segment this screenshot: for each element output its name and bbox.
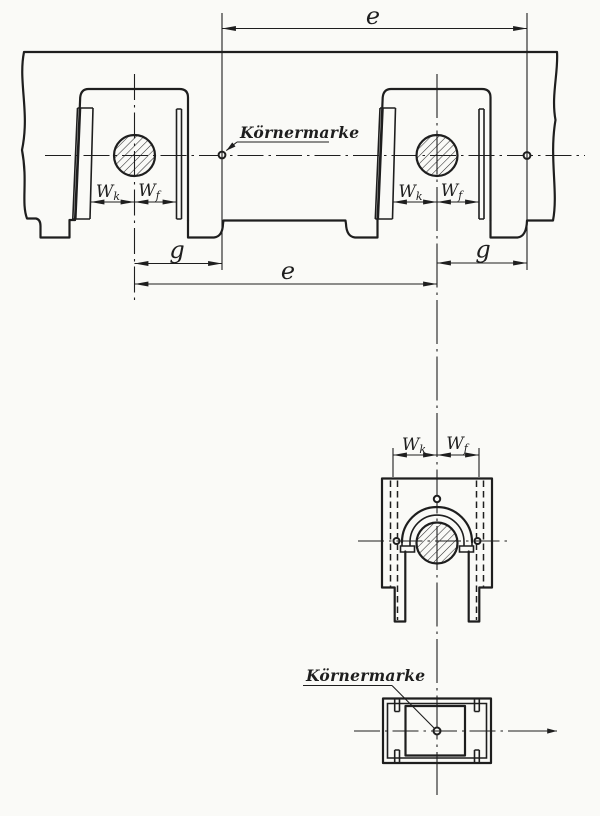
machine-bed-outline bbox=[22, 52, 557, 238]
koernermarke-callout-top: Körnermarke bbox=[226, 123, 359, 151]
bottom-view: Körnermarke bbox=[303, 666, 557, 763]
technical-drawing: Wk Wf e Körnermarke g g bbox=[0, 0, 600, 816]
koernermarke-label-bottom: Körnermarke bbox=[305, 666, 425, 685]
e-bottom-dimension-label: e bbox=[281, 257, 295, 285]
scanned-drawing-page: Wk Wf e Körnermarke g g bbox=[0, 0, 600, 816]
wk-dimension-label: Wk bbox=[402, 435, 426, 456]
middle-plan-view: Wk Wf bbox=[358, 434, 512, 622]
koernermarke-label-top: Körnermarke bbox=[239, 123, 359, 142]
punch-dot-top bbox=[434, 496, 440, 502]
koernermarke-callout-bottom: Körnermarke bbox=[303, 666, 434, 728]
g-right-dimension-label: g bbox=[475, 236, 490, 264]
pin-section-hatched bbox=[417, 523, 458, 564]
koernermarke-leader-top bbox=[226, 142, 237, 151]
wf-dimension-label: Wf bbox=[446, 434, 469, 455]
section-pocket-left bbox=[73, 89, 188, 221]
top-section-view: e Körnermarke g g e bbox=[22, 2, 585, 300]
section-pocket-right bbox=[375, 89, 490, 221]
e-top-dimension-label: e bbox=[366, 2, 380, 30]
g-left-dimension-label: g bbox=[169, 236, 184, 264]
